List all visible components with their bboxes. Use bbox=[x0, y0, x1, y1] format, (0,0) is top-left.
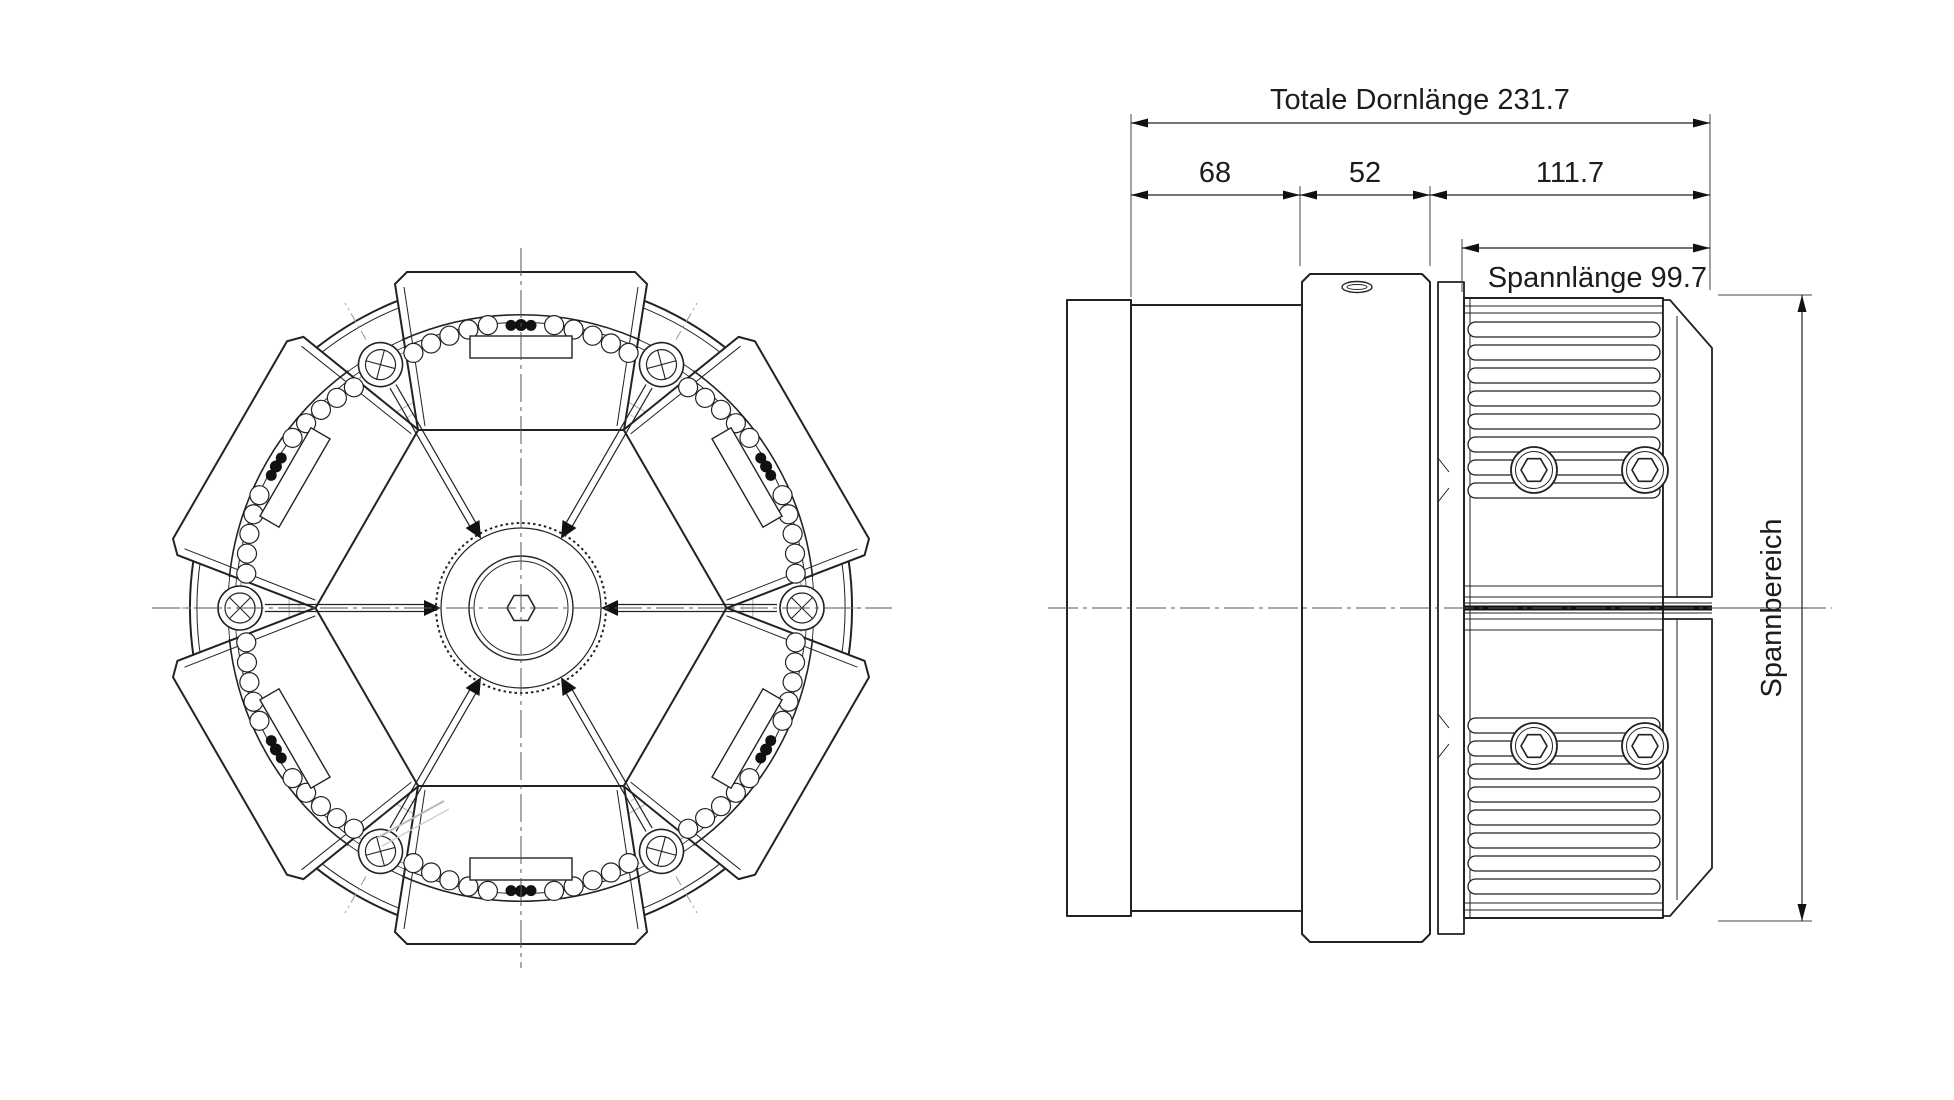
lower-face-block bbox=[1663, 619, 1712, 916]
upper-face-block bbox=[1663, 300, 1712, 597]
technical-drawing-page: Totale Dornlänge 231.7 68 52 111.7 Spann… bbox=[0, 0, 1954, 1100]
side-view bbox=[1048, 274, 1832, 942]
dim-total-length: Totale Dornlänge 231.7 bbox=[1131, 84, 1710, 128]
front-view bbox=[152, 248, 892, 968]
dim-clamp-range: Spannbereich bbox=[1716, 295, 1812, 921]
segment-2-label: 52 bbox=[1349, 157, 1381, 189]
clamp-length-label: Spannlänge 99.7 bbox=[1488, 262, 1707, 294]
arrow-right bbox=[1693, 119, 1710, 128]
arrow-left bbox=[1131, 119, 1148, 128]
segment-3-label: 111.7 bbox=[1536, 157, 1604, 189]
dim-segments: 68 52 111.7 bbox=[1131, 157, 1710, 200]
segment-1-label: 68 bbox=[1199, 157, 1231, 189]
total-length-label: Totale Dornlänge 231.7 bbox=[1270, 84, 1570, 116]
clamp-range-label: Spannbereich bbox=[1756, 519, 1788, 698]
mandrel-drawing: Totale Dornlänge 231.7 68 52 111.7 Spann… bbox=[0, 0, 1954, 1100]
dim-clamp-length: Spannlänge 99.7 bbox=[1462, 244, 1710, 295]
